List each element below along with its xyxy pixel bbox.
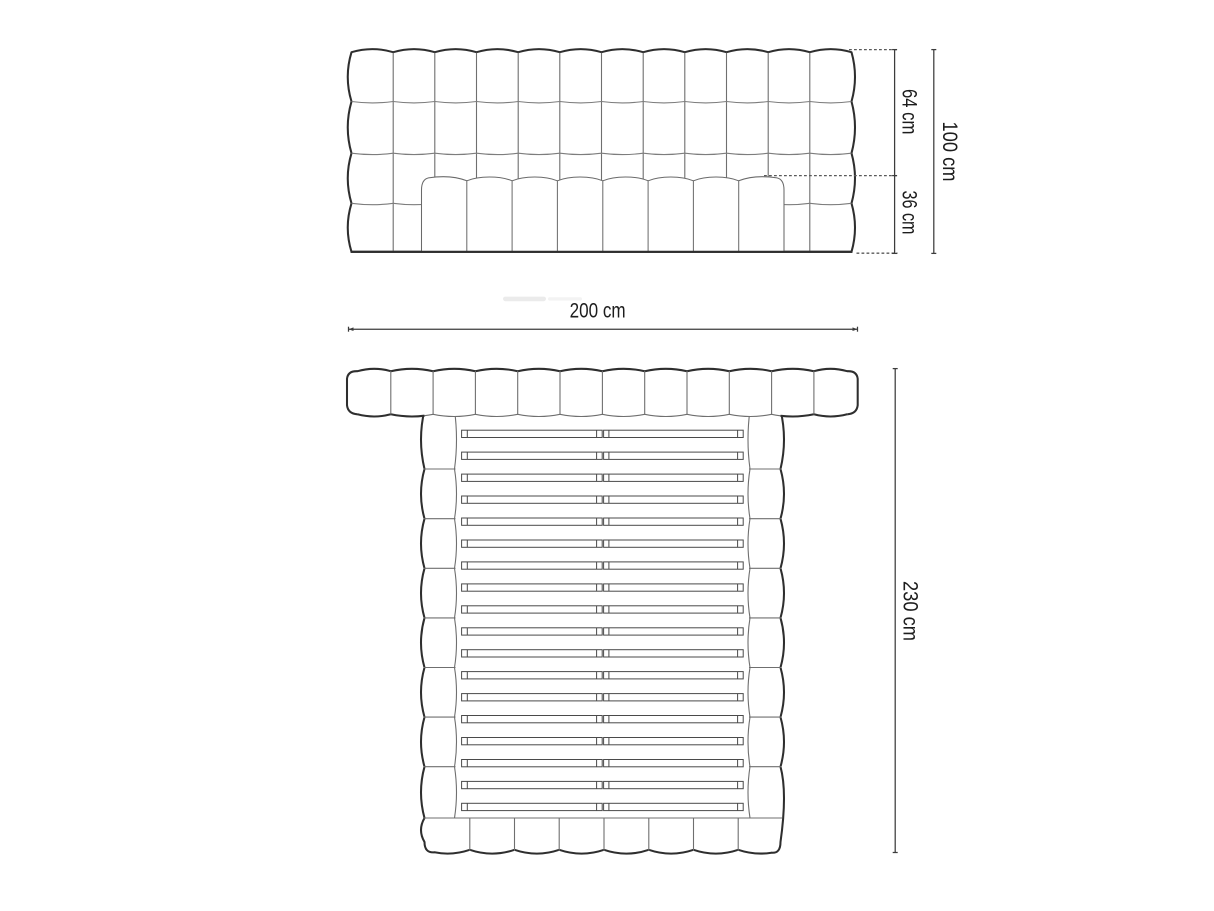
- svg-text:230 cm: 230 cm: [899, 581, 922, 641]
- svg-text:200 cm: 200 cm: [570, 300, 626, 323]
- svg-text:64 cm: 64 cm: [898, 89, 921, 135]
- svg-text:36 cm: 36 cm: [898, 191, 921, 235]
- svg-text:100 cm: 100 cm: [938, 122, 961, 182]
